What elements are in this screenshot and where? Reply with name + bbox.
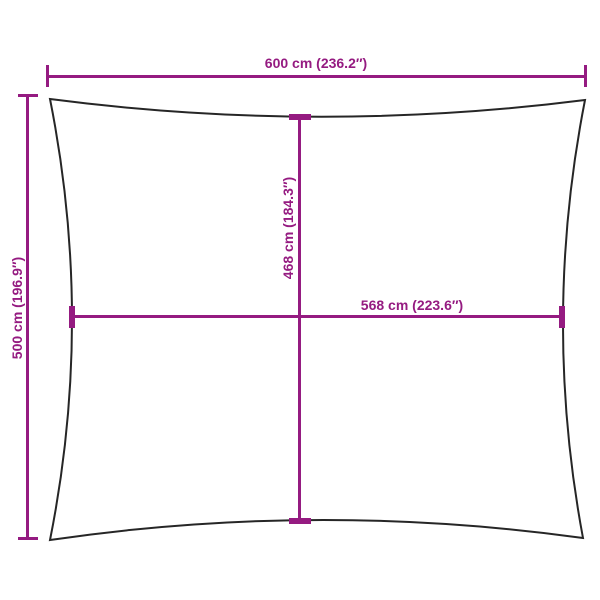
top-dimension-line xyxy=(48,75,585,78)
left-dimension-line xyxy=(26,95,29,538)
inner-vertical-tick-bottom xyxy=(289,518,311,524)
sail-shape-path xyxy=(50,99,585,540)
top-dimension-tick-right xyxy=(584,65,587,87)
inner-horizontal-tick-right xyxy=(559,306,565,328)
top-dimension-tick-left xyxy=(46,65,49,87)
left-dimension-label: 500 cm (196.9″) xyxy=(10,257,24,359)
inner-vertical-dimension-label: 468 cm (184.3″) xyxy=(281,177,295,279)
left-dimension-tick-bottom xyxy=(18,537,38,540)
inner-horizontal-tick-left xyxy=(69,306,75,328)
diagram-canvas: 600 cm (236.2″) 500 cm (196.9″) 468 cm (… xyxy=(0,0,600,600)
top-dimension-label: 600 cm (236.2″) xyxy=(265,56,367,70)
left-dimension-tick-top xyxy=(18,94,38,97)
inner-horizontal-dimension-label: 568 cm (223.6″) xyxy=(361,298,463,312)
inner-vertical-dimension-line xyxy=(298,117,301,521)
inner-vertical-tick-top xyxy=(289,114,311,120)
inner-horizontal-dimension-line xyxy=(72,315,562,318)
